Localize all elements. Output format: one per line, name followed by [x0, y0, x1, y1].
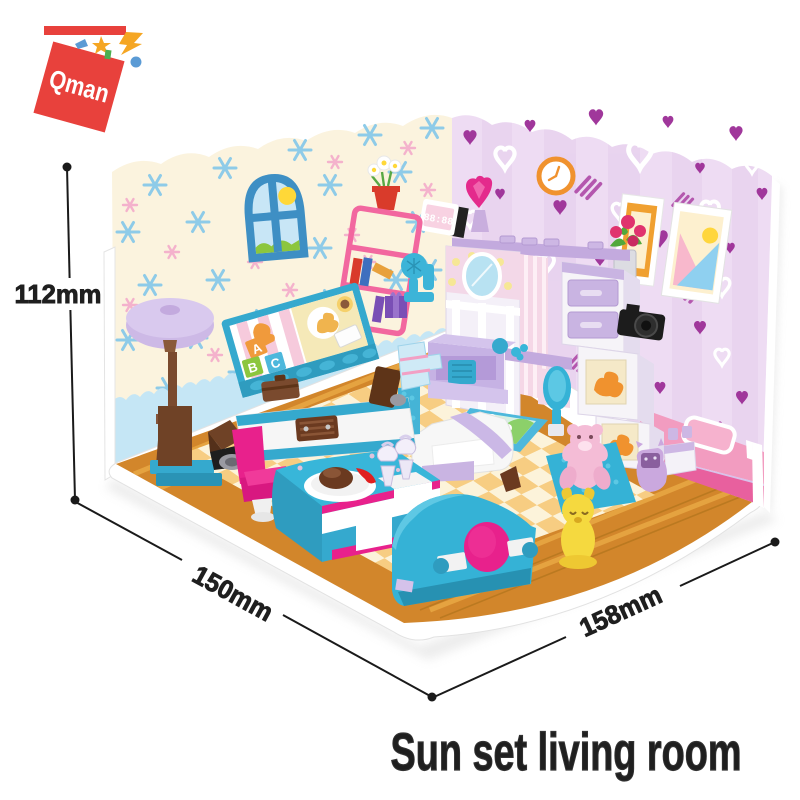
svg-text:112mm: 112mm: [15, 279, 102, 309]
svg-text:Sun set living room: Sun set living room: [391, 723, 742, 782]
